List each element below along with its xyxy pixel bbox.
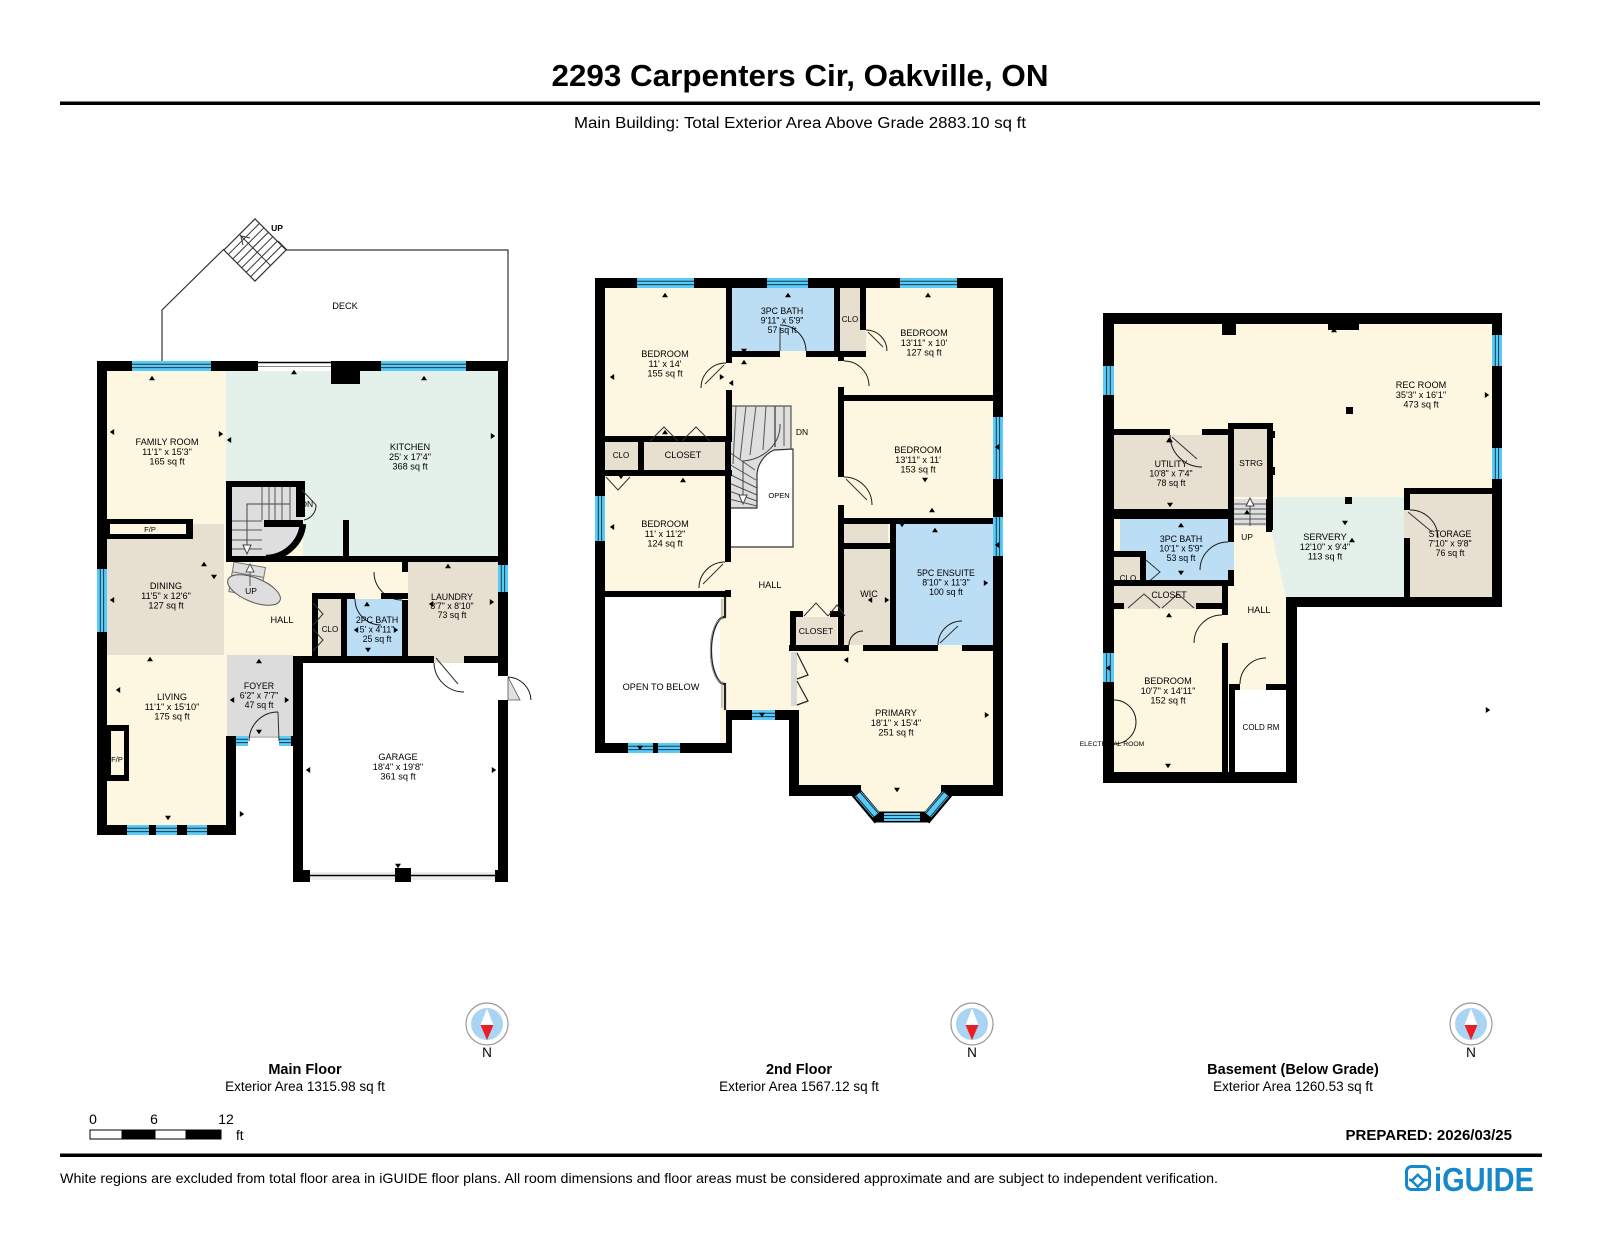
svg-text:10'7" x 14'11": 10'7" x 14'11" — [1141, 686, 1196, 696]
svg-text:PRIMARY: PRIMARY — [875, 708, 917, 718]
svg-text:DN: DN — [301, 499, 313, 509]
svg-text:CLO: CLO — [1120, 574, 1136, 583]
svg-text:Exterior Area 1260.53 sq ft: Exterior Area 1260.53 sq ft — [1213, 1079, 1373, 1094]
svg-text:100 sq ft: 100 sq ft — [929, 587, 963, 597]
svg-text:6: 6 — [150, 1111, 158, 1127]
svg-text:DN: DN — [796, 427, 808, 437]
svg-text:155 sq ft: 155 sq ft — [647, 369, 683, 379]
svg-text:ft: ft — [236, 1128, 244, 1143]
svg-text:N: N — [1466, 1045, 1476, 1060]
svg-text:UP: UP — [245, 586, 257, 596]
svg-text:BEDROOM: BEDROOM — [1144, 676, 1191, 686]
svg-text:10'1" x 5'9": 10'1" x 5'9" — [1159, 544, 1202, 554]
svg-text:251 sq ft: 251 sq ft — [878, 728, 914, 738]
svg-text:N: N — [482, 1045, 492, 1060]
svg-text:STORAGE: STORAGE — [1429, 529, 1472, 539]
svg-text:473 sq ft: 473 sq ft — [1403, 400, 1439, 410]
svg-text:UTILITY: UTILITY — [1155, 459, 1188, 469]
svg-text:18'4" x 19'8": 18'4" x 19'8" — [373, 762, 423, 772]
svg-text:COLD RM: COLD RM — [1243, 723, 1280, 732]
svg-text:8'10" x 11'3": 8'10" x 11'3" — [922, 578, 970, 588]
svg-text:White regions are excluded fro: White regions are excluded from total fl… — [60, 1170, 1218, 1186]
svg-text:57 sq ft: 57 sq ft — [768, 325, 797, 335]
svg-text:3PC BATH: 3PC BATH — [1160, 534, 1202, 544]
svg-text:Exterior Area 1315.98 sq ft: Exterior Area 1315.98 sq ft — [225, 1079, 385, 1094]
svg-text:113 sq ft: 113 sq ft — [1308, 552, 1343, 562]
svg-text:KITCHEN: KITCHEN — [390, 442, 430, 452]
svg-text:11'5" x 12'6": 11'5" x 12'6" — [141, 591, 191, 601]
svg-text:REC ROOM: REC ROOM — [1396, 380, 1447, 390]
svg-text:7'10" x 9'8": 7'10" x 9'8" — [1428, 539, 1471, 549]
svg-text:11'1" x 15'3": 11'1" x 15'3" — [142, 447, 192, 457]
svg-text:5PC ENSUITE: 5PC ENSUITE — [917, 568, 975, 578]
svg-text:Main Building: Total Exterior: Main Building: Total Exterior Area Above… — [574, 115, 1027, 132]
svg-text:CLO: CLO — [613, 451, 629, 460]
svg-text:CLOSET: CLOSET — [799, 626, 834, 636]
svg-text:DECK: DECK — [332, 301, 358, 311]
svg-text:6'2" x 7'7": 6'2" x 7'7" — [240, 691, 278, 701]
svg-text:SERVERY: SERVERY — [1303, 532, 1347, 542]
svg-text:35'3" x 16'1": 35'3" x 16'1" — [1396, 390, 1446, 400]
svg-text:STRG: STRG — [1239, 458, 1263, 468]
svg-text:F/P: F/P — [144, 525, 156, 534]
svg-text:BEDROOM: BEDROOM — [641, 519, 688, 529]
svg-text:0: 0 — [89, 1111, 97, 1127]
svg-text:DINING: DINING — [150, 581, 182, 591]
svg-text:CLOSET: CLOSET — [1151, 590, 1187, 600]
svg-text:HALL: HALL — [759, 580, 782, 590]
svg-text:N: N — [967, 1045, 977, 1060]
svg-text:FAMILY ROOM: FAMILY ROOM — [136, 437, 199, 447]
svg-text:Basement (Below Grade): Basement (Below Grade) — [1207, 1062, 1379, 1078]
svg-text:165 sq ft: 165 sq ft — [149, 457, 185, 467]
svg-text:25 sq ft: 25 sq ft — [363, 634, 392, 644]
svg-text:FOYER: FOYER — [244, 681, 274, 691]
svg-text:BEDROOM: BEDROOM — [900, 328, 947, 338]
svg-text:12'10" x 9'4": 12'10" x 9'4" — [1300, 542, 1350, 552]
svg-text:BEDROOM: BEDROOM — [641, 349, 688, 359]
svg-text:Main Floor: Main Floor — [268, 1062, 342, 1078]
svg-text:25' x 17'4": 25' x 17'4" — [389, 452, 431, 462]
svg-text:OPEN TO BELOW: OPEN TO BELOW — [623, 682, 700, 692]
svg-text:UP: UP — [271, 223, 283, 233]
svg-text:BEDROOM: BEDROOM — [894, 445, 941, 455]
svg-text:HALL: HALL — [1248, 605, 1271, 615]
svg-text:2nd Floor: 2nd Floor — [766, 1062, 832, 1078]
svg-text:13'11" x 10': 13'11" x 10' — [901, 338, 948, 348]
svg-text:18'1" x 15'4": 18'1" x 15'4" — [871, 718, 921, 728]
svg-text:CLOSET: CLOSET — [665, 450, 702, 460]
svg-text:73 sq ft: 73 sq ft — [438, 610, 467, 620]
svg-text:9'11" x 5'9": 9'11" x 5'9" — [761, 316, 804, 326]
svg-text:5' x 4'11": 5' x 4'11" — [360, 625, 395, 635]
svg-text:13'11" x 11': 13'11" x 11' — [895, 455, 941, 465]
svg-text:11'1" x 15'10": 11'1" x 15'10" — [145, 702, 200, 712]
svg-text:2293 Carpenters Cir, Oakville,: 2293 Carpenters Cir, Oakville, ON — [552, 58, 1049, 93]
svg-text:F/P: F/P — [111, 755, 123, 764]
svg-text:175 sq ft: 175 sq ft — [154, 712, 190, 722]
svg-text:10'8" x 7'4": 10'8" x 7'4" — [1149, 469, 1192, 479]
svg-text:2PC BATH: 2PC BATH — [356, 615, 398, 625]
svg-text:152 sq ft: 152 sq ft — [1150, 696, 1186, 706]
svg-text:OPEN: OPEN — [768, 491, 789, 500]
svg-text:LIVING: LIVING — [157, 692, 187, 702]
svg-text:CLO: CLO — [322, 625, 338, 634]
svg-text:HALL: HALL — [271, 615, 294, 625]
svg-text:GARAGE: GARAGE — [378, 752, 417, 762]
svg-text:368 sq ft: 368 sq ft — [392, 462, 428, 472]
svg-text:Exterior Area 1567.12 sq ft: Exterior Area 1567.12 sq ft — [719, 1079, 879, 1094]
svg-text:361 sq ft: 361 sq ft — [380, 772, 416, 782]
svg-text:12: 12 — [218, 1111, 234, 1127]
svg-text:11' x 14': 11' x 14' — [649, 359, 682, 369]
svg-text:124 sq ft: 124 sq ft — [647, 539, 683, 549]
svg-text:CLO: CLO — [842, 315, 858, 324]
svg-text:153 sq ft: 153 sq ft — [900, 465, 936, 475]
svg-text:127 sq ft: 127 sq ft — [148, 601, 184, 611]
svg-text:47 sq ft: 47 sq ft — [245, 700, 274, 710]
svg-text:53 sq ft: 53 sq ft — [1167, 553, 1196, 563]
svg-text:iGUIDE: iGUIDE — [1434, 1162, 1534, 1199]
svg-text:3PC BATH: 3PC BATH — [761, 306, 803, 316]
svg-text:11' x 11'2": 11' x 11'2" — [645, 529, 686, 539]
svg-text:WIC: WIC — [860, 589, 878, 599]
svg-text:127 sq ft: 127 sq ft — [906, 348, 942, 358]
svg-text:PREPARED: 2026/03/25: PREPARED: 2026/03/25 — [1346, 1127, 1512, 1144]
svg-text:76 sq ft: 76 sq ft — [1436, 548, 1465, 558]
svg-text:UP: UP — [1241, 532, 1253, 542]
svg-text:ELECTRICAL ROOM: ELECTRICAL ROOM — [1080, 741, 1145, 748]
svg-text:78 sq ft: 78 sq ft — [1157, 478, 1186, 488]
